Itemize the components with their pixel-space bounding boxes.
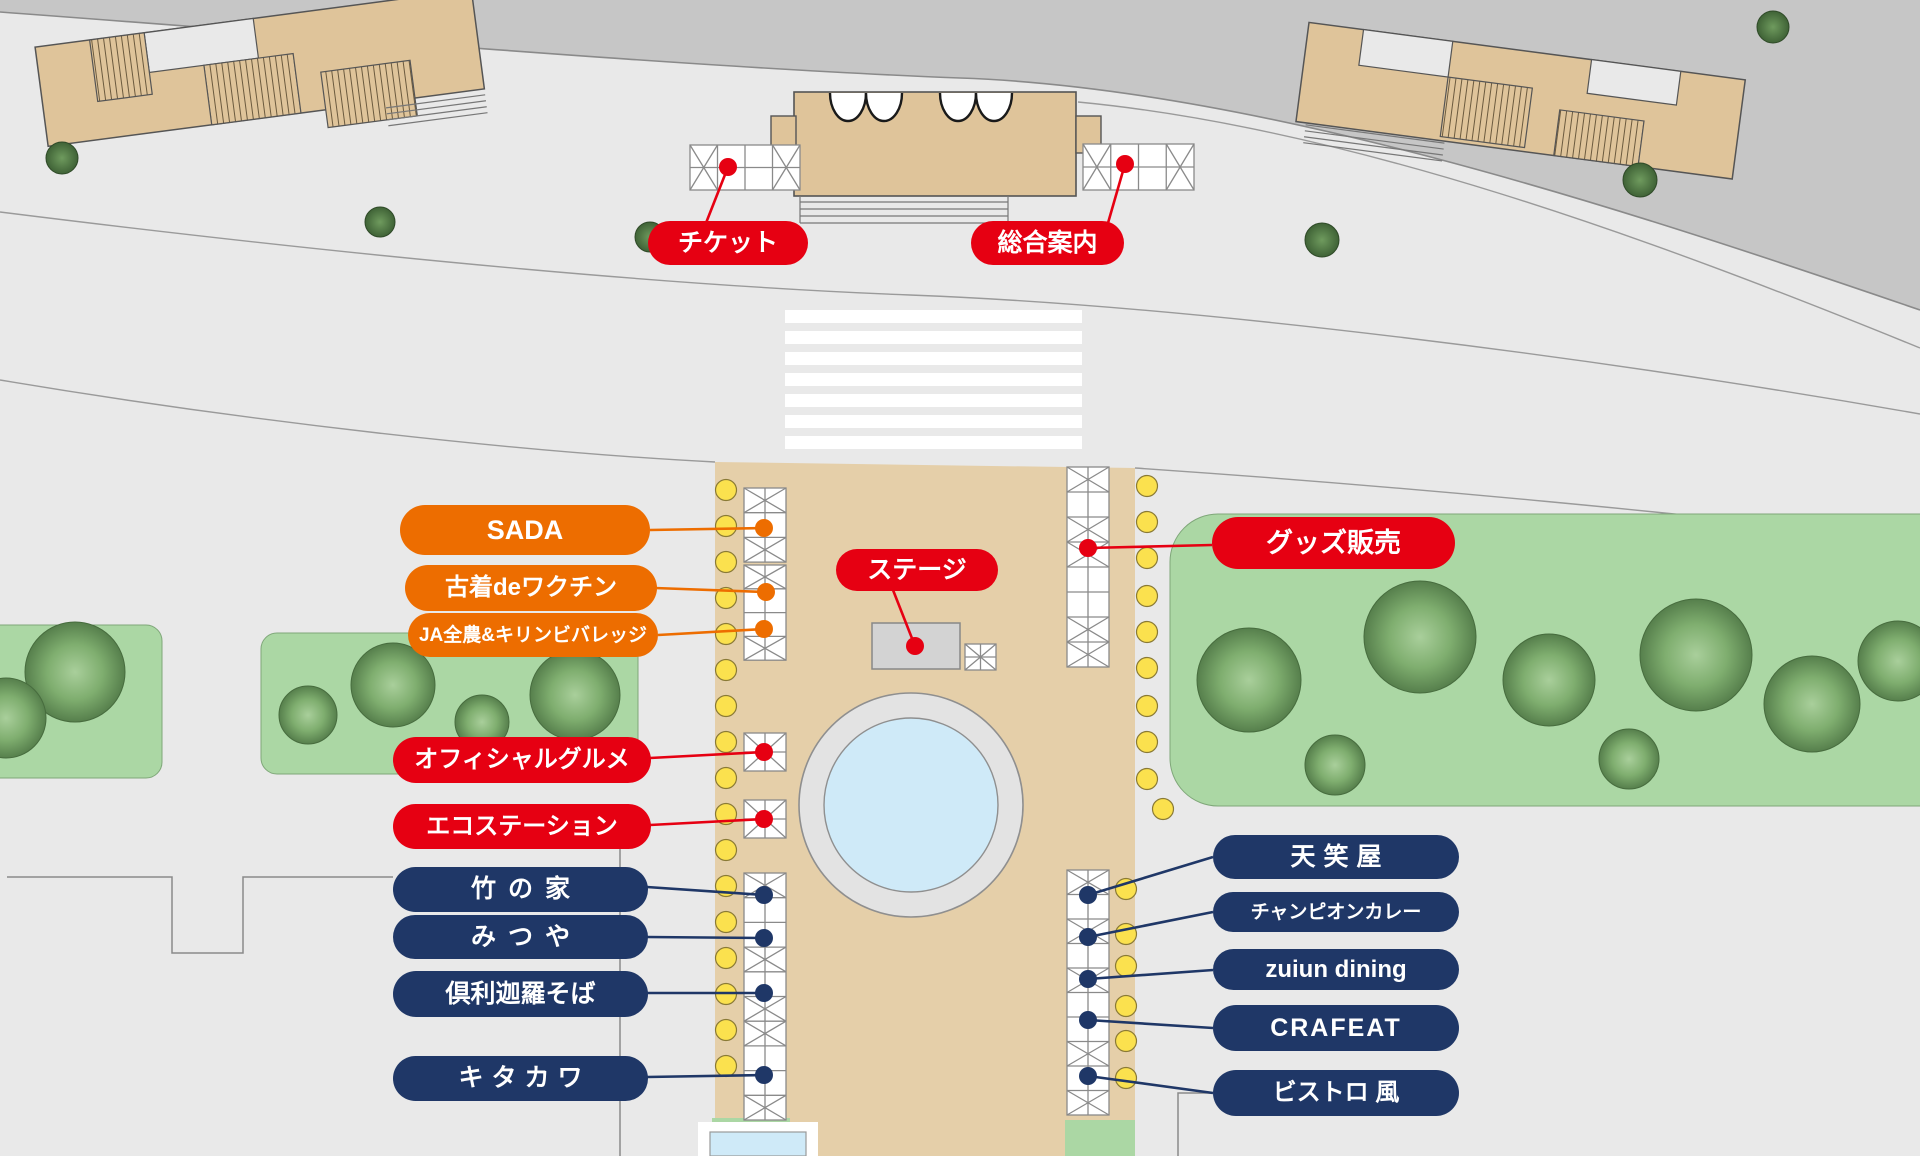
booth-marker — [755, 1066, 773, 1084]
booth-marker — [755, 810, 773, 828]
yellow-dot-marker — [1137, 586, 1158, 607]
label-crafeat-text: CRAFEAT — [1270, 1016, 1402, 1041]
label-stage: ステージ — [836, 549, 998, 591]
yellow-dot-marker — [1137, 769, 1158, 790]
label-sada: SADA — [400, 505, 650, 555]
booth-marker — [1079, 886, 1097, 904]
label-kitakawa-text: キタカワ — [450, 1066, 590, 1091]
booth-marker — [1079, 928, 1097, 946]
tree-icon — [1757, 11, 1789, 43]
crosswalk-stripe — [785, 415, 1082, 428]
label-goods: グッズ販売 — [1212, 517, 1455, 569]
yellow-dot-marker — [716, 768, 737, 789]
label-take-text: 竹の家 — [459, 877, 582, 902]
tree-icon — [1640, 599, 1752, 711]
tree-icon — [279, 686, 337, 744]
yellow-dot-marker — [716, 840, 737, 861]
label-zuiun-text: zuiun dining — [1265, 958, 1406, 982]
yellow-dot-marker — [1137, 732, 1158, 753]
yellow-dot-marker — [1137, 696, 1158, 717]
tree-icon — [1764, 656, 1860, 752]
yellow-dot-marker — [1116, 1068, 1137, 1089]
booth-marker — [1079, 970, 1097, 988]
label-gourmet-text: オフィシャルグルメ — [414, 748, 630, 772]
yellow-dot-marker — [716, 696, 737, 717]
booth-marker — [755, 929, 773, 947]
booth-marker — [1079, 1011, 1097, 1029]
label-ticket: チケット — [648, 221, 808, 265]
label-kurikara-soba: 倶利迦羅そば — [393, 971, 648, 1017]
tree-icon — [365, 207, 395, 237]
label-info-text: 総合案内 — [997, 231, 1097, 256]
crosswalk-stripe — [785, 394, 1082, 407]
booth-tent-icon — [1067, 467, 1109, 667]
booth-marker — [1079, 539, 1097, 557]
yellow-dot-marker — [716, 912, 737, 933]
tree-icon — [46, 142, 78, 174]
crosswalk-stripe — [785, 331, 1082, 344]
tree-icon — [1623, 163, 1657, 197]
label-bistro-fuu: ビストロ 風 — [1213, 1070, 1459, 1116]
booth-tent-icon — [1083, 144, 1194, 190]
label-ticket-text: チケット — [678, 231, 778, 256]
label-tenshoya: 天笑屋 — [1213, 835, 1459, 879]
tree-icon — [1197, 628, 1301, 732]
label-info: 総合案内 — [971, 221, 1124, 265]
yellow-dot-marker — [1116, 996, 1137, 1017]
event-venue-map: チケット 総合案内 ステージ グッズ販売 SADA 古着deワクチン JA全農&… — [0, 0, 1920, 1156]
yellow-dot-marker — [716, 1056, 737, 1077]
tree-icon — [1305, 223, 1339, 257]
leader-line — [647, 937, 764, 938]
yellow-dot-marker — [1137, 548, 1158, 569]
label-zuiun-dining: zuiun dining — [1213, 949, 1459, 990]
crosswalk-stripe — [785, 310, 1082, 323]
booth-marker — [755, 886, 773, 904]
tree-icon — [530, 650, 620, 740]
crosswalk-stripe — [785, 352, 1082, 365]
tree-icon — [1599, 729, 1659, 789]
label-goods-text: グッズ販売 — [1266, 530, 1401, 557]
yellow-dot-marker — [716, 1020, 737, 1041]
label-kitakawa: キタカワ — [393, 1056, 648, 1101]
yellow-dot-marker — [716, 552, 737, 573]
yellow-dot-marker — [1137, 622, 1158, 643]
stairs-hatch — [1440, 77, 1532, 148]
yellow-dot-marker — [716, 660, 737, 681]
label-crafeat: CRAFEAT — [1213, 1005, 1459, 1051]
pond-water — [710, 1132, 806, 1156]
yellow-dot-marker — [716, 624, 737, 645]
label-eco-text: エコステーション — [426, 815, 618, 839]
crosswalk-stripe — [785, 373, 1082, 386]
booth-marker — [755, 620, 773, 638]
yellow-dot-marker — [1116, 1031, 1137, 1052]
booth-marker — [755, 984, 773, 1002]
label-champion-curry: チャンピオンカレー — [1213, 892, 1459, 932]
tree-icon — [1305, 735, 1365, 795]
label-mitsuya-text: みつや — [459, 925, 582, 950]
booth-marker — [755, 743, 773, 761]
stairs-hatch — [90, 33, 153, 102]
booth-marker — [1079, 1067, 1097, 1085]
label-kurikara-text: 倶利迦羅そば — [445, 982, 595, 1007]
yellow-dot-marker — [1153, 799, 1174, 820]
yellow-dot-marker — [1137, 658, 1158, 679]
booth-marker — [719, 158, 737, 176]
booth-tent-icon — [690, 145, 800, 190]
label-tenshoya-text: 天笑屋 — [1282, 845, 1389, 870]
yellow-dot-marker — [716, 948, 737, 969]
yellow-dot-marker — [716, 516, 737, 537]
grass-patch-bottom-right — [1065, 1120, 1135, 1156]
yellow-dot-marker — [716, 480, 737, 501]
yellow-dot-marker — [1137, 476, 1158, 497]
crosswalk-stripe — [785, 436, 1082, 449]
label-eco-station: エコステーション — [393, 804, 651, 849]
label-furugi-text: 古着deワクチン — [445, 576, 617, 600]
yellow-dot-marker — [716, 732, 737, 753]
label-take-no-ie: 竹の家 — [393, 867, 648, 912]
label-ja-text: JA全農&キリンビバレッジ — [419, 626, 647, 645]
label-bistro-text: ビストロ 風 — [1273, 1081, 1400, 1105]
tree-icon — [1364, 581, 1476, 693]
label-mitsuya: みつや — [393, 915, 648, 959]
booth-marker — [755, 519, 773, 537]
fountain-water — [824, 718, 998, 892]
label-sada-text: SADA — [487, 517, 564, 544]
label-champion-text: チャンピオンカレー — [1251, 903, 1422, 922]
yellow-dot-marker — [1116, 956, 1137, 977]
booth-tent-icon — [965, 644, 996, 670]
booth-marker — [1116, 155, 1134, 173]
yellow-dot-marker — [1137, 512, 1158, 533]
booth-tent-icon — [744, 565, 786, 660]
booth-marker — [906, 637, 924, 655]
label-official-gourmet: オフィシャルグルメ — [393, 737, 651, 783]
label-stage-text: ステージ — [867, 558, 967, 583]
label-ja-zennoh-kirin: JA全農&キリンビバレッジ — [408, 613, 658, 657]
tree-icon — [1503, 634, 1595, 726]
booth-marker — [757, 583, 775, 601]
stairs-hatch — [204, 54, 301, 125]
label-furugi-vaccine: 古着deワクチン — [405, 565, 657, 611]
